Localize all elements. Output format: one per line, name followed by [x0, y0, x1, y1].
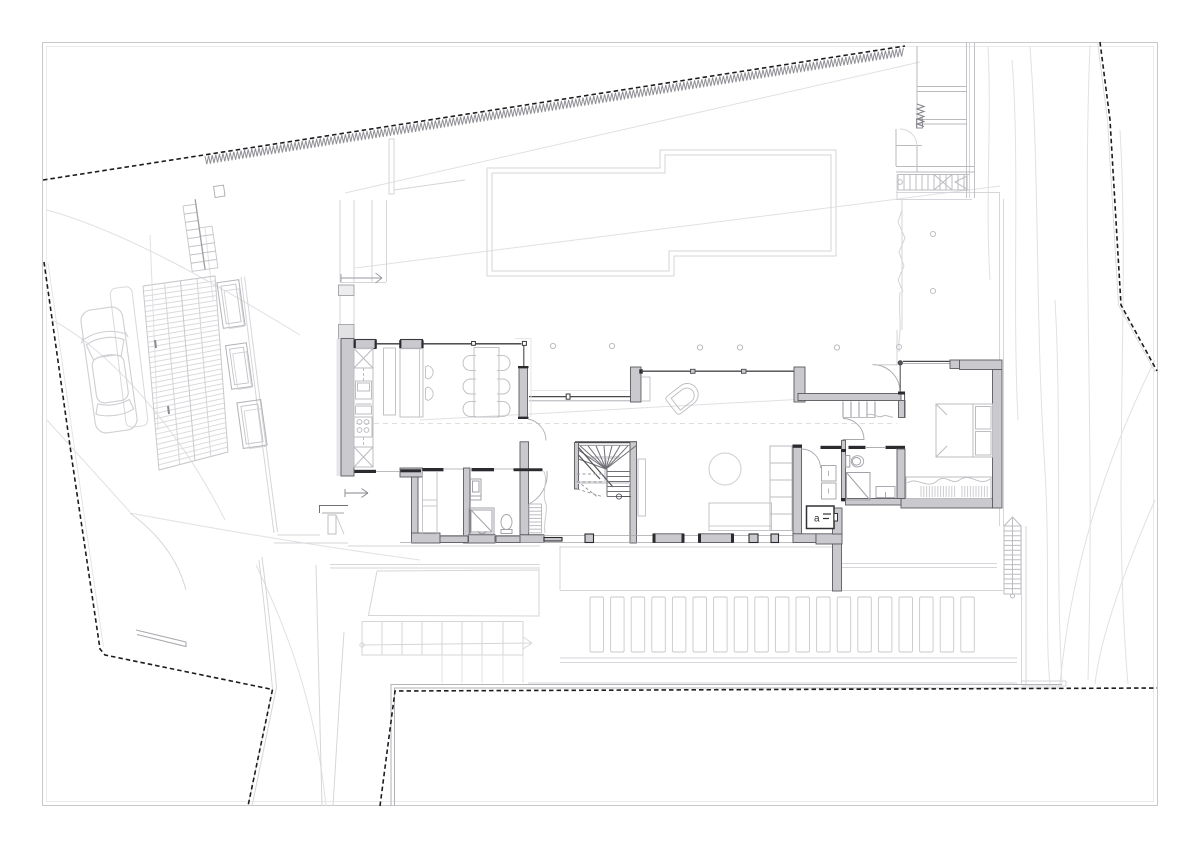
svg-text:a: a [814, 514, 820, 525]
